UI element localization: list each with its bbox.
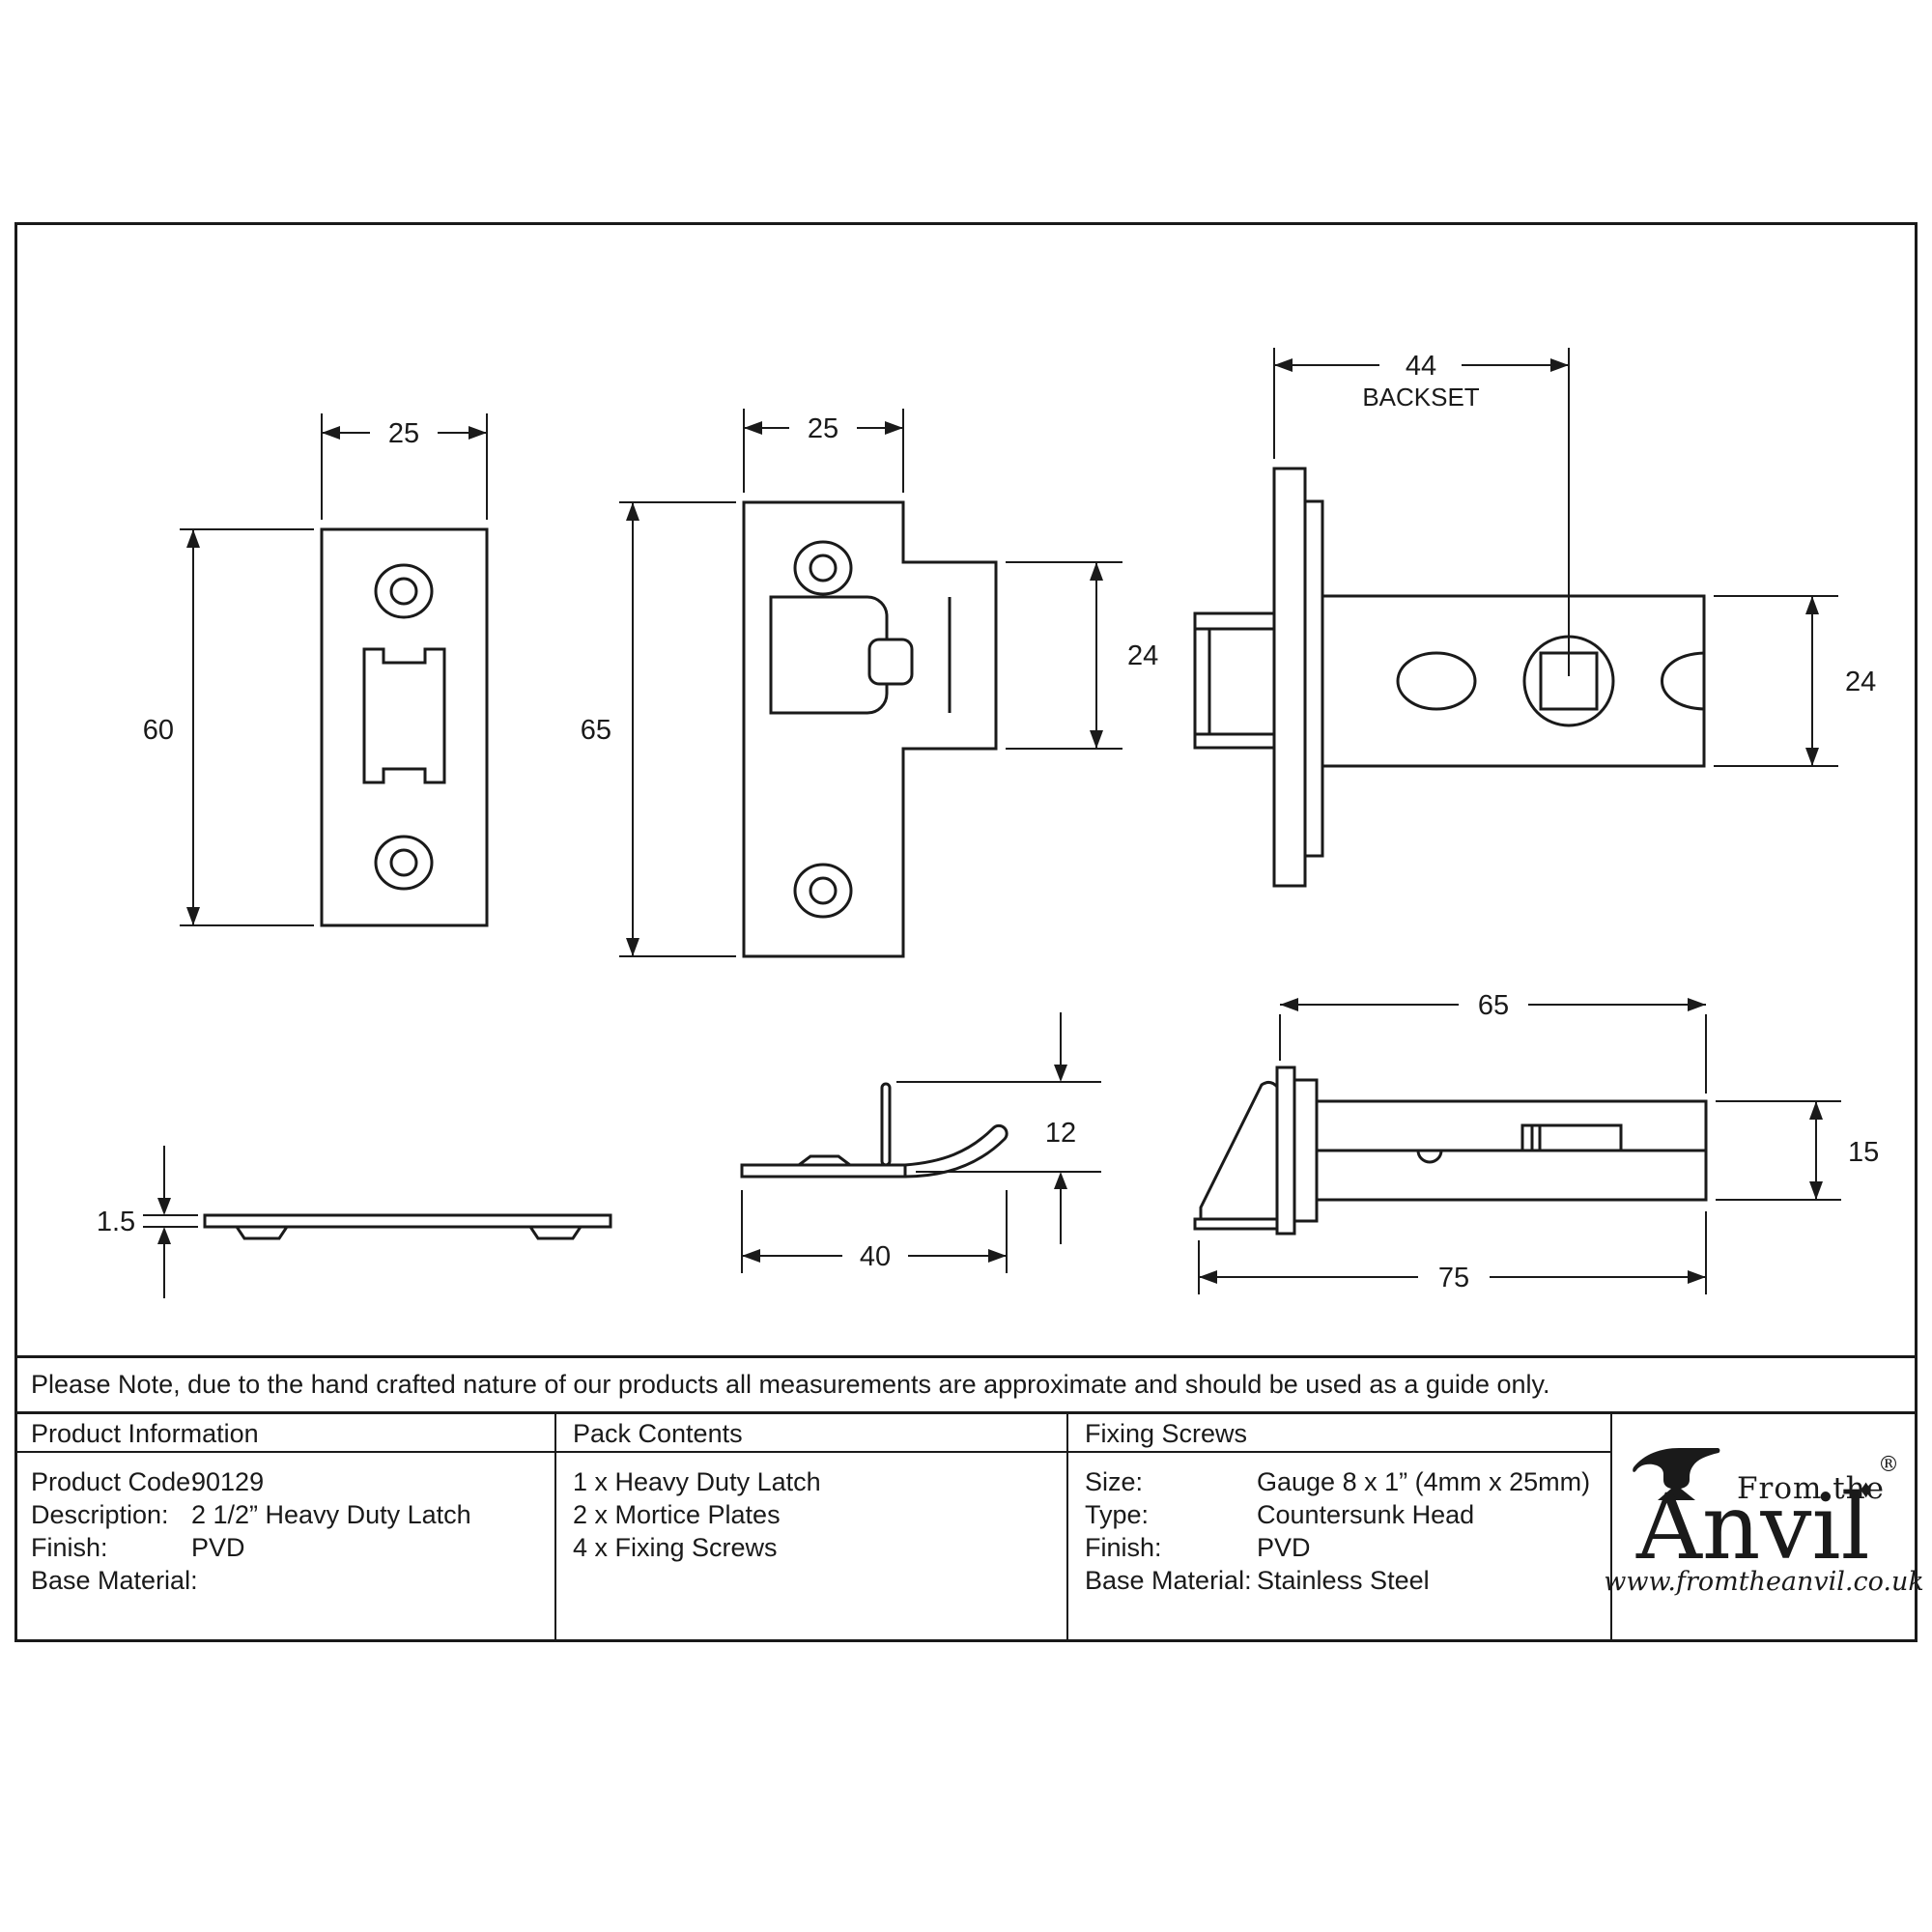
latch-bolt: [1195, 613, 1274, 748]
dim-label-width: 25: [808, 413, 838, 444]
strike-plate-outline: [744, 502, 996, 956]
registered-mark-icon: ®: [1878, 1453, 1899, 1477]
backset-caption: BACKSET: [1362, 383, 1479, 412]
dim-label-overall: 75: [1438, 1263, 1469, 1293]
faceplate: [1274, 469, 1305, 886]
logo-url: www.fromtheanvil.co.uk: [1604, 1567, 1924, 1597]
dim-label-backset: 44: [1406, 351, 1436, 382]
dim-label-width: 25: [388, 418, 419, 449]
technical-drawings: 25 60 25: [0, 0, 1932, 1932]
plate-edge-outline: [205, 1215, 611, 1227]
faceplate: [1277, 1067, 1294, 1234]
screw-hole-inner: [810, 878, 836, 903]
latch-case: [1322, 596, 1704, 766]
countersink-boss: [237, 1227, 287, 1238]
strike-plate-front-drawing: 25 65 24: [581, 409, 1159, 956]
latch-keep-tab: [869, 639, 912, 684]
countersink-boss: [530, 1227, 581, 1238]
screw-hole-inner: [391, 850, 416, 875]
forend-plate: [1294, 1080, 1317, 1221]
dim-label-thickness: 1.5: [97, 1207, 135, 1237]
latch-side-drawing: 44 BACKSET 24: [1195, 348, 1876, 886]
dim-label-lug: 12: [1045, 1118, 1076, 1149]
dim-label-case-height: 24: [1845, 667, 1876, 697]
dim-label-height: 60: [143, 715, 174, 746]
plate-edge-drawing: 1.5: [97, 1146, 611, 1298]
locating-bump: [799, 1156, 850, 1165]
strike-edge-outline: [742, 1165, 905, 1177]
curved-lip: [905, 1125, 1007, 1177]
locating-lug: [882, 1084, 890, 1165]
dim-label-wing: 24: [1127, 640, 1158, 671]
bolt-base-plate: [1195, 1219, 1277, 1229]
dim-label-barrel: 15: [1848, 1137, 1879, 1168]
from-the-anvil-logo: Anvil From the ♦ ® www.fromtheanvil.co.u…: [1604, 1448, 1924, 1597]
mortice-plate-front-drawing: 25 60: [143, 413, 487, 925]
dim-label-height: 65: [581, 715, 611, 746]
screw-hole-inner: [810, 555, 836, 581]
strike-edge-drawing: 40 12: [742, 1012, 1101, 1273]
slide-catch: [1522, 1125, 1621, 1151]
fixing-slot: [1398, 653, 1475, 709]
forend-plate: [1305, 501, 1322, 856]
dim-label-width: 40: [860, 1241, 891, 1272]
dim-label-case: 65: [1478, 990, 1509, 1021]
spec-sheet-page: Please Note, due to the hand crafted nat…: [0, 0, 1932, 1932]
latch-bolt-wedge: [1201, 1082, 1277, 1219]
latch-top-drawing: 65 75 15: [1195, 990, 1879, 1294]
diamond-icon: ♦: [1860, 1474, 1872, 1503]
latch-aperture: [364, 649, 444, 782]
screw-hole-inner: [391, 579, 416, 604]
